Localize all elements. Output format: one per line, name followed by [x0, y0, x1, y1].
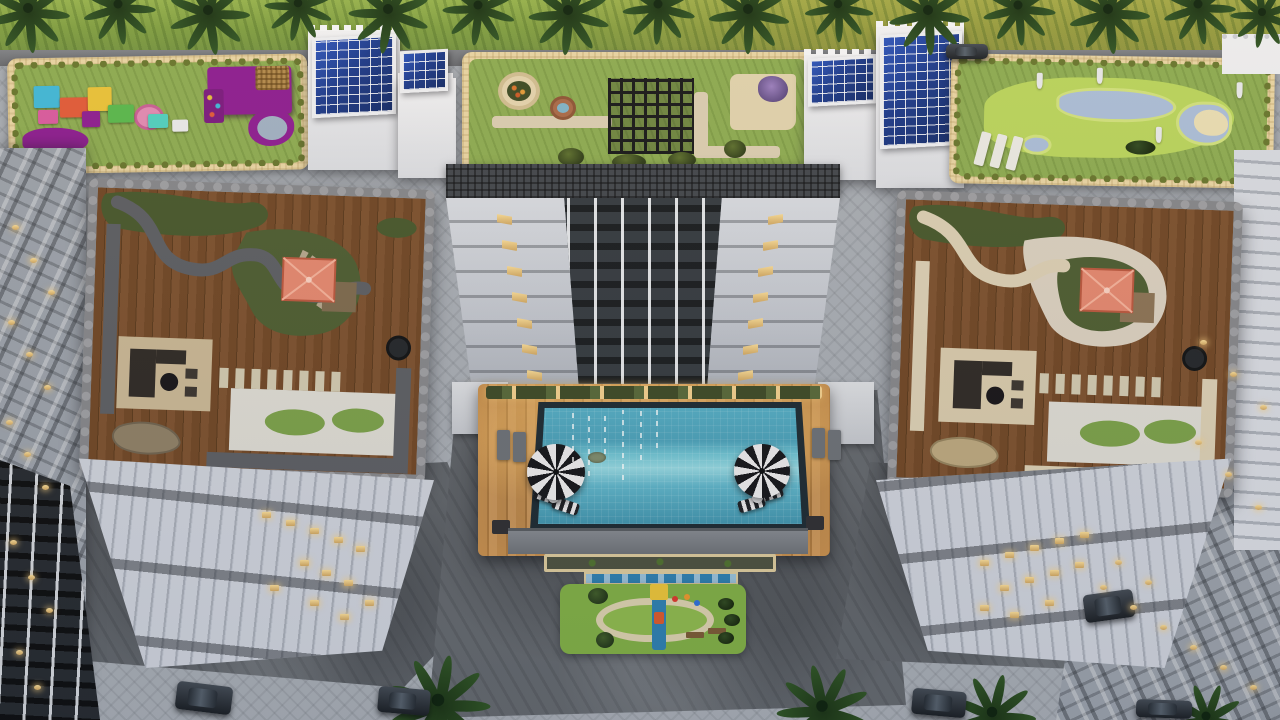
aerial-render-scene — [0, 0, 1280, 720]
deck-planter-row — [486, 386, 822, 399]
left-deck-landscape — [88, 187, 425, 474]
circular-flower-planter — [498, 72, 540, 110]
statue — [1037, 73, 1043, 89]
central-tower-roof — [446, 164, 840, 198]
recliner — [812, 428, 825, 458]
sand-bunker — [1194, 109, 1228, 136]
water-feature — [1021, 134, 1051, 155]
statue — [1097, 68, 1103, 84]
dark-shrub — [1125, 140, 1155, 155]
dark-shrub — [718, 632, 734, 644]
person — [672, 596, 678, 602]
statue — [1156, 127, 1162, 143]
play-structure — [38, 110, 58, 124]
service-tower — [398, 78, 456, 178]
corner-parapet — [1222, 34, 1280, 74]
parasol-striped — [734, 444, 790, 498]
parasol-striped — [527, 444, 585, 500]
pergola — [608, 78, 694, 154]
solar-panel-array — [400, 49, 448, 94]
fountain — [550, 96, 576, 120]
dark-shrub — [718, 598, 734, 610]
flowering-tree — [758, 76, 788, 102]
play-structure — [82, 111, 100, 127]
tree — [588, 588, 608, 604]
pool-floatie — [588, 452, 606, 463]
play-structure — [108, 104, 134, 122]
seesaw — [148, 114, 168, 128]
solar-panel-array — [312, 34, 396, 118]
left-tower-amenity-deck — [79, 178, 435, 484]
recliner — [828, 430, 841, 460]
bench — [686, 632, 704, 638]
grass-strip — [0, 0, 1280, 52]
person — [684, 594, 690, 600]
planter-strip — [544, 554, 776, 572]
play-structure — [33, 86, 59, 108]
climbing-wall — [204, 89, 225, 123]
rooftop-garden — [462, 52, 814, 178]
solar-panel-array — [808, 55, 876, 107]
tree — [596, 632, 614, 648]
right-tower-amenity-deck — [887, 190, 1243, 498]
statue — [1236, 82, 1242, 98]
planter-box — [806, 516, 824, 530]
recliner — [497, 430, 510, 460]
garden-path — [492, 116, 612, 128]
central-tower — [446, 198, 840, 402]
bench — [172, 119, 188, 131]
ground-playground — [560, 584, 746, 654]
blue-slide — [652, 586, 666, 650]
person — [694, 600, 700, 606]
right-deck-landscape — [896, 199, 1234, 488]
round-bush — [724, 140, 746, 158]
pool-edge-concrete — [508, 528, 808, 554]
recliner — [513, 432, 526, 462]
dark-shrub — [724, 614, 740, 626]
